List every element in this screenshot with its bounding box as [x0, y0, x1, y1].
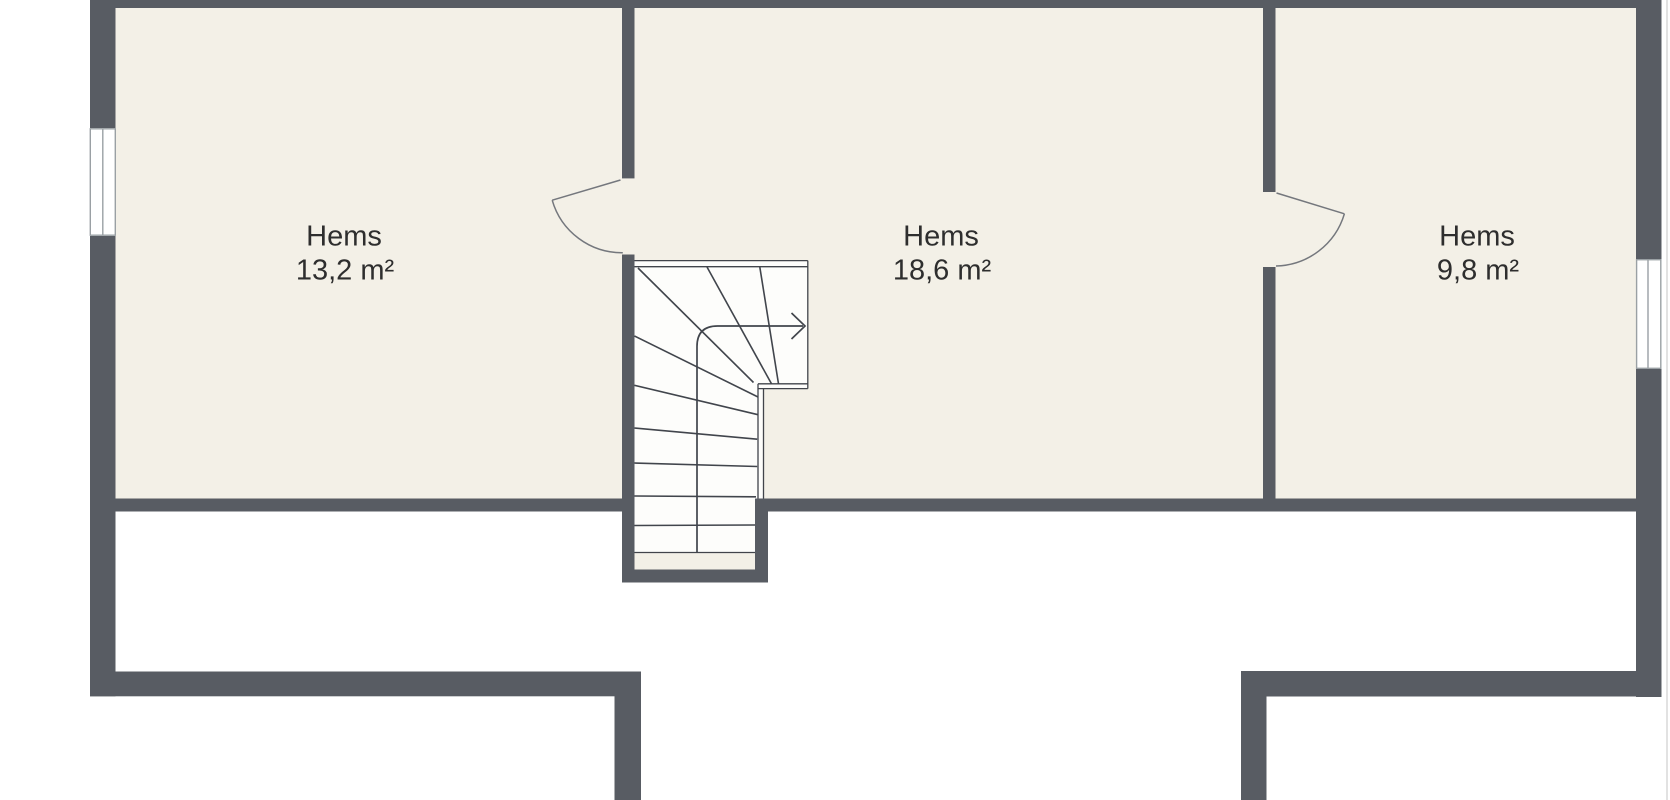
- svg-text:9,8 m²: 9,8 m²: [1437, 255, 1520, 287]
- svg-text:18,6 m²: 18,6 m²: [893, 255, 992, 287]
- svg-text:13,2 m²: 13,2 m²: [296, 255, 395, 287]
- svg-text:Hems: Hems: [306, 221, 382, 253]
- svg-text:Hems: Hems: [1439, 221, 1515, 253]
- svg-text:Hems: Hems: [903, 221, 979, 253]
